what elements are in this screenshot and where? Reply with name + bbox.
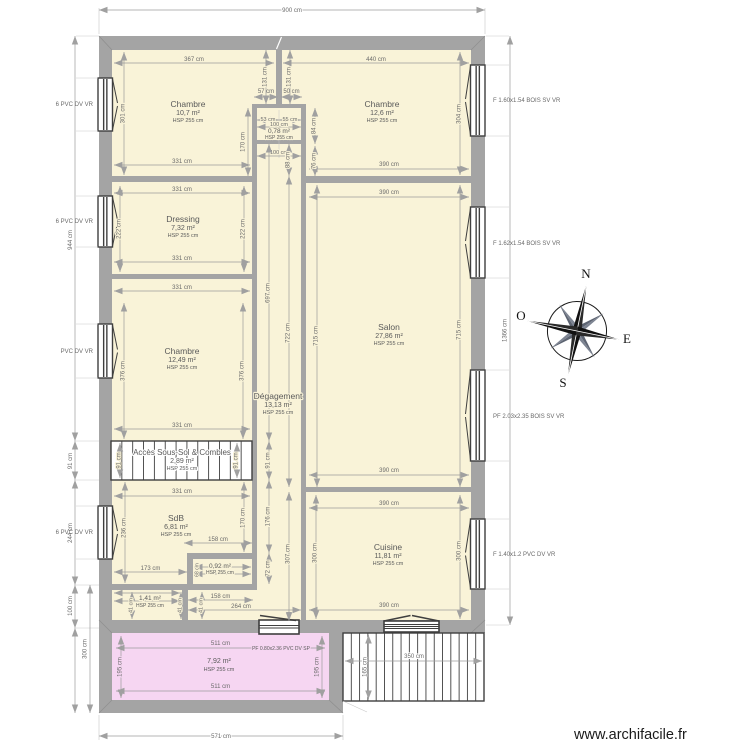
svg-text:12,6 m²: 12,6 m² (370, 110, 394, 117)
svg-text:HSP 255 cm: HSP 255 cm (263, 410, 294, 416)
svg-text:376 cm: 376 cm (240, 361, 246, 381)
svg-text:236 cm: 236 cm (122, 518, 128, 538)
svg-text:170 cm: 170 cm (241, 508, 247, 528)
svg-text:F 1.60x1.54 BOIS SV VR: F 1.60x1.54 BOIS SV VR (493, 98, 561, 104)
svg-text:300 cm: 300 cm (457, 541, 463, 561)
svg-text:307 cm: 307 cm (286, 544, 292, 564)
svg-text:0,92 m²: 0,92 m² (209, 563, 232, 570)
svg-text:HSP 255 cm: HSP 255 cm (167, 365, 198, 371)
svg-text:158 cm: 158 cm (208, 537, 228, 543)
svg-text:Chambre: Chambre (171, 99, 206, 109)
svg-text:165 cm: 165 cm (363, 657, 369, 677)
svg-text:6,81 m²: 6,81 m² (164, 524, 188, 531)
svg-text:Chambre: Chambre (165, 346, 200, 356)
svg-text:91 cm: 91 cm (68, 453, 74, 469)
svg-text:6 PVC DV VR: 6 PVC DV VR (56, 102, 94, 108)
svg-text:331 cm: 331 cm (172, 159, 192, 165)
svg-text:300 cm: 300 cm (313, 543, 319, 563)
svg-text:331 cm: 331 cm (172, 187, 192, 193)
svg-text:HSP 255 cm: HSP 255 cm (204, 667, 235, 673)
svg-text:131 cm: 131 cm (263, 67, 269, 87)
svg-text:72 cm: 72 cm (266, 560, 272, 576)
svg-text:91 cm: 91 cm (234, 452, 240, 468)
svg-text:722 cm: 722 cm (286, 323, 292, 343)
svg-text:76 cm: 76 cm (312, 153, 318, 169)
svg-text:41 cm: 41 cm (199, 598, 205, 613)
svg-text:www.archifacile.fr: www.archifacile.fr (573, 727, 687, 743)
svg-text:170 cm: 170 cm (241, 132, 247, 152)
svg-text:715 cm: 715 cm (457, 320, 463, 340)
svg-text:HSP 255 cm: HSP 255 cm (367, 118, 398, 124)
svg-text:HSP 255 cm: HSP 255 cm (161, 532, 192, 538)
svg-text:O: O (516, 308, 525, 323)
svg-text:1,41 m²: 1,41 m² (139, 595, 162, 602)
svg-text:173 cm: 173 cm (141, 566, 161, 572)
svg-text:91 cm: 91 cm (117, 452, 123, 468)
svg-text:Dressing: Dressing (166, 214, 200, 224)
svg-text:367 cm: 367 cm (184, 57, 204, 63)
svg-text:331 cm: 331 cm (172, 256, 192, 262)
svg-text:HSP 255 cm: HSP 255 cm (374, 341, 405, 347)
svg-text:HSP 255 cm: HSP 255 cm (173, 118, 204, 124)
svg-text:HSP 255 cm: HSP 255 cm (373, 561, 404, 567)
svg-text:50 cm: 50 cm (283, 89, 299, 95)
svg-text:F 1.40x1.2 PVC DV VR: F 1.40x1.2 PVC DV VR (493, 552, 556, 558)
svg-text:195 cm: 195 cm (315, 657, 321, 677)
svg-text:2,89 m²: 2,89 m² (170, 458, 194, 465)
svg-text:511 cm: 511 cm (211, 641, 230, 647)
svg-text:222 cm: 222 cm (117, 219, 123, 239)
svg-text:7,32 m²: 7,32 m² (171, 225, 195, 232)
svg-text:390 cm: 390 cm (379, 603, 399, 609)
svg-text:91 cm: 91 cm (266, 452, 272, 468)
svg-text:511 cm: 511 cm (211, 684, 230, 690)
svg-text:900 cm: 900 cm (282, 8, 302, 14)
svg-text:944 cm: 944 cm (68, 230, 74, 250)
svg-text:HSP 255 cm: HSP 255 cm (136, 603, 164, 609)
svg-text:390 cm: 390 cm (379, 162, 399, 168)
svg-text:7,92 m²: 7,92 m² (207, 658, 231, 665)
svg-text:12,49 m²: 12,49 m² (168, 357, 196, 364)
svg-text:350 cm: 350 cm (404, 654, 424, 660)
svg-text:715 cm: 715 cm (314, 326, 320, 346)
svg-text:Accès Sous-Sol & Combles: Accès Sous-Sol & Combles (133, 448, 231, 457)
svg-text:11,81 m²: 11,81 m² (374, 553, 402, 560)
svg-text:176 cm: 176 cm (266, 507, 272, 527)
svg-text:84 cm: 84 cm (312, 118, 318, 134)
svg-text:Cuisine: Cuisine (374, 542, 403, 552)
svg-text:131 cm: 131 cm (287, 67, 293, 87)
svg-text:390 cm: 390 cm (379, 190, 399, 196)
svg-text:331 cm: 331 cm (172, 423, 192, 429)
svg-text:376 cm: 376 cm (121, 361, 127, 381)
svg-text:88 cm: 88 cm (286, 152, 292, 168)
svg-text:300 cm: 300 cm (83, 639, 89, 659)
svg-text:PF 0.80x2.36 PVC DV SP: PF 0.80x2.36 PVC DV SP (252, 646, 310, 652)
svg-text:HSP 255 cm: HSP 255 cm (206, 570, 234, 576)
svg-text:331 cm: 331 cm (172, 489, 192, 495)
svg-text:HSP 255 cm: HSP 255 cm (265, 135, 293, 141)
svg-text:SdB: SdB (168, 513, 184, 523)
svg-text:Dégagement: Dégagement (254, 391, 303, 401)
svg-text:27,86 m²: 27,86 m² (375, 333, 403, 340)
svg-text:41 cm: 41 cm (129, 598, 135, 613)
svg-text:571 cm: 571 cm (211, 734, 231, 740)
svg-text:1366 cm: 1366 cm (503, 319, 509, 342)
svg-text:440 cm: 440 cm (366, 57, 386, 63)
svg-text:HSP 255 cm: HSP 255 cm (167, 466, 198, 472)
svg-text:264 cm: 264 cm (231, 604, 251, 610)
svg-text:158 cm: 158 cm (211, 594, 231, 600)
svg-text:10,7 m²: 10,7 m² (176, 110, 200, 117)
svg-text:6 PVC DV VR: 6 PVC DV VR (56, 219, 94, 225)
svg-text:68 cm: 68 cm (195, 563, 201, 577)
svg-text:HSP 255 cm: HSP 255 cm (168, 233, 199, 239)
svg-text:697 cm: 697 cm (266, 283, 272, 303)
svg-text:PVC DV VR: PVC DV VR (61, 349, 94, 355)
svg-text:0,78 m²: 0,78 m² (268, 128, 291, 135)
svg-text:304 cm: 304 cm (457, 104, 463, 124)
svg-text:331 cm: 331 cm (172, 285, 192, 291)
svg-text:222 cm: 222 cm (241, 219, 247, 239)
svg-text:Chambre: Chambre (365, 99, 400, 109)
svg-text:100 cm: 100 cm (68, 596, 74, 616)
svg-text:N: N (581, 266, 591, 281)
svg-text:F 1.62x1.54 BOIS SV VR: F 1.62x1.54 BOIS SV VR (493, 241, 561, 247)
svg-text:41 cm: 41 cm (178, 598, 184, 613)
svg-text:301 cm: 301 cm (121, 104, 127, 124)
svg-text:6 PVC DV VR: 6 PVC DV VR (56, 530, 94, 536)
svg-text:390 cm: 390 cm (379, 501, 399, 507)
svg-text:E: E (623, 331, 631, 346)
svg-text:390 cm: 390 cm (379, 468, 399, 474)
svg-text:PF 2.03x2.35 BOIS SV VR: PF 2.03x2.35 BOIS SV VR (493, 414, 565, 420)
svg-text:195 cm: 195 cm (118, 657, 124, 677)
svg-text:S: S (559, 375, 566, 390)
svg-text:13,13 m²: 13,13 m² (264, 402, 292, 409)
svg-text:Salon: Salon (378, 322, 400, 332)
